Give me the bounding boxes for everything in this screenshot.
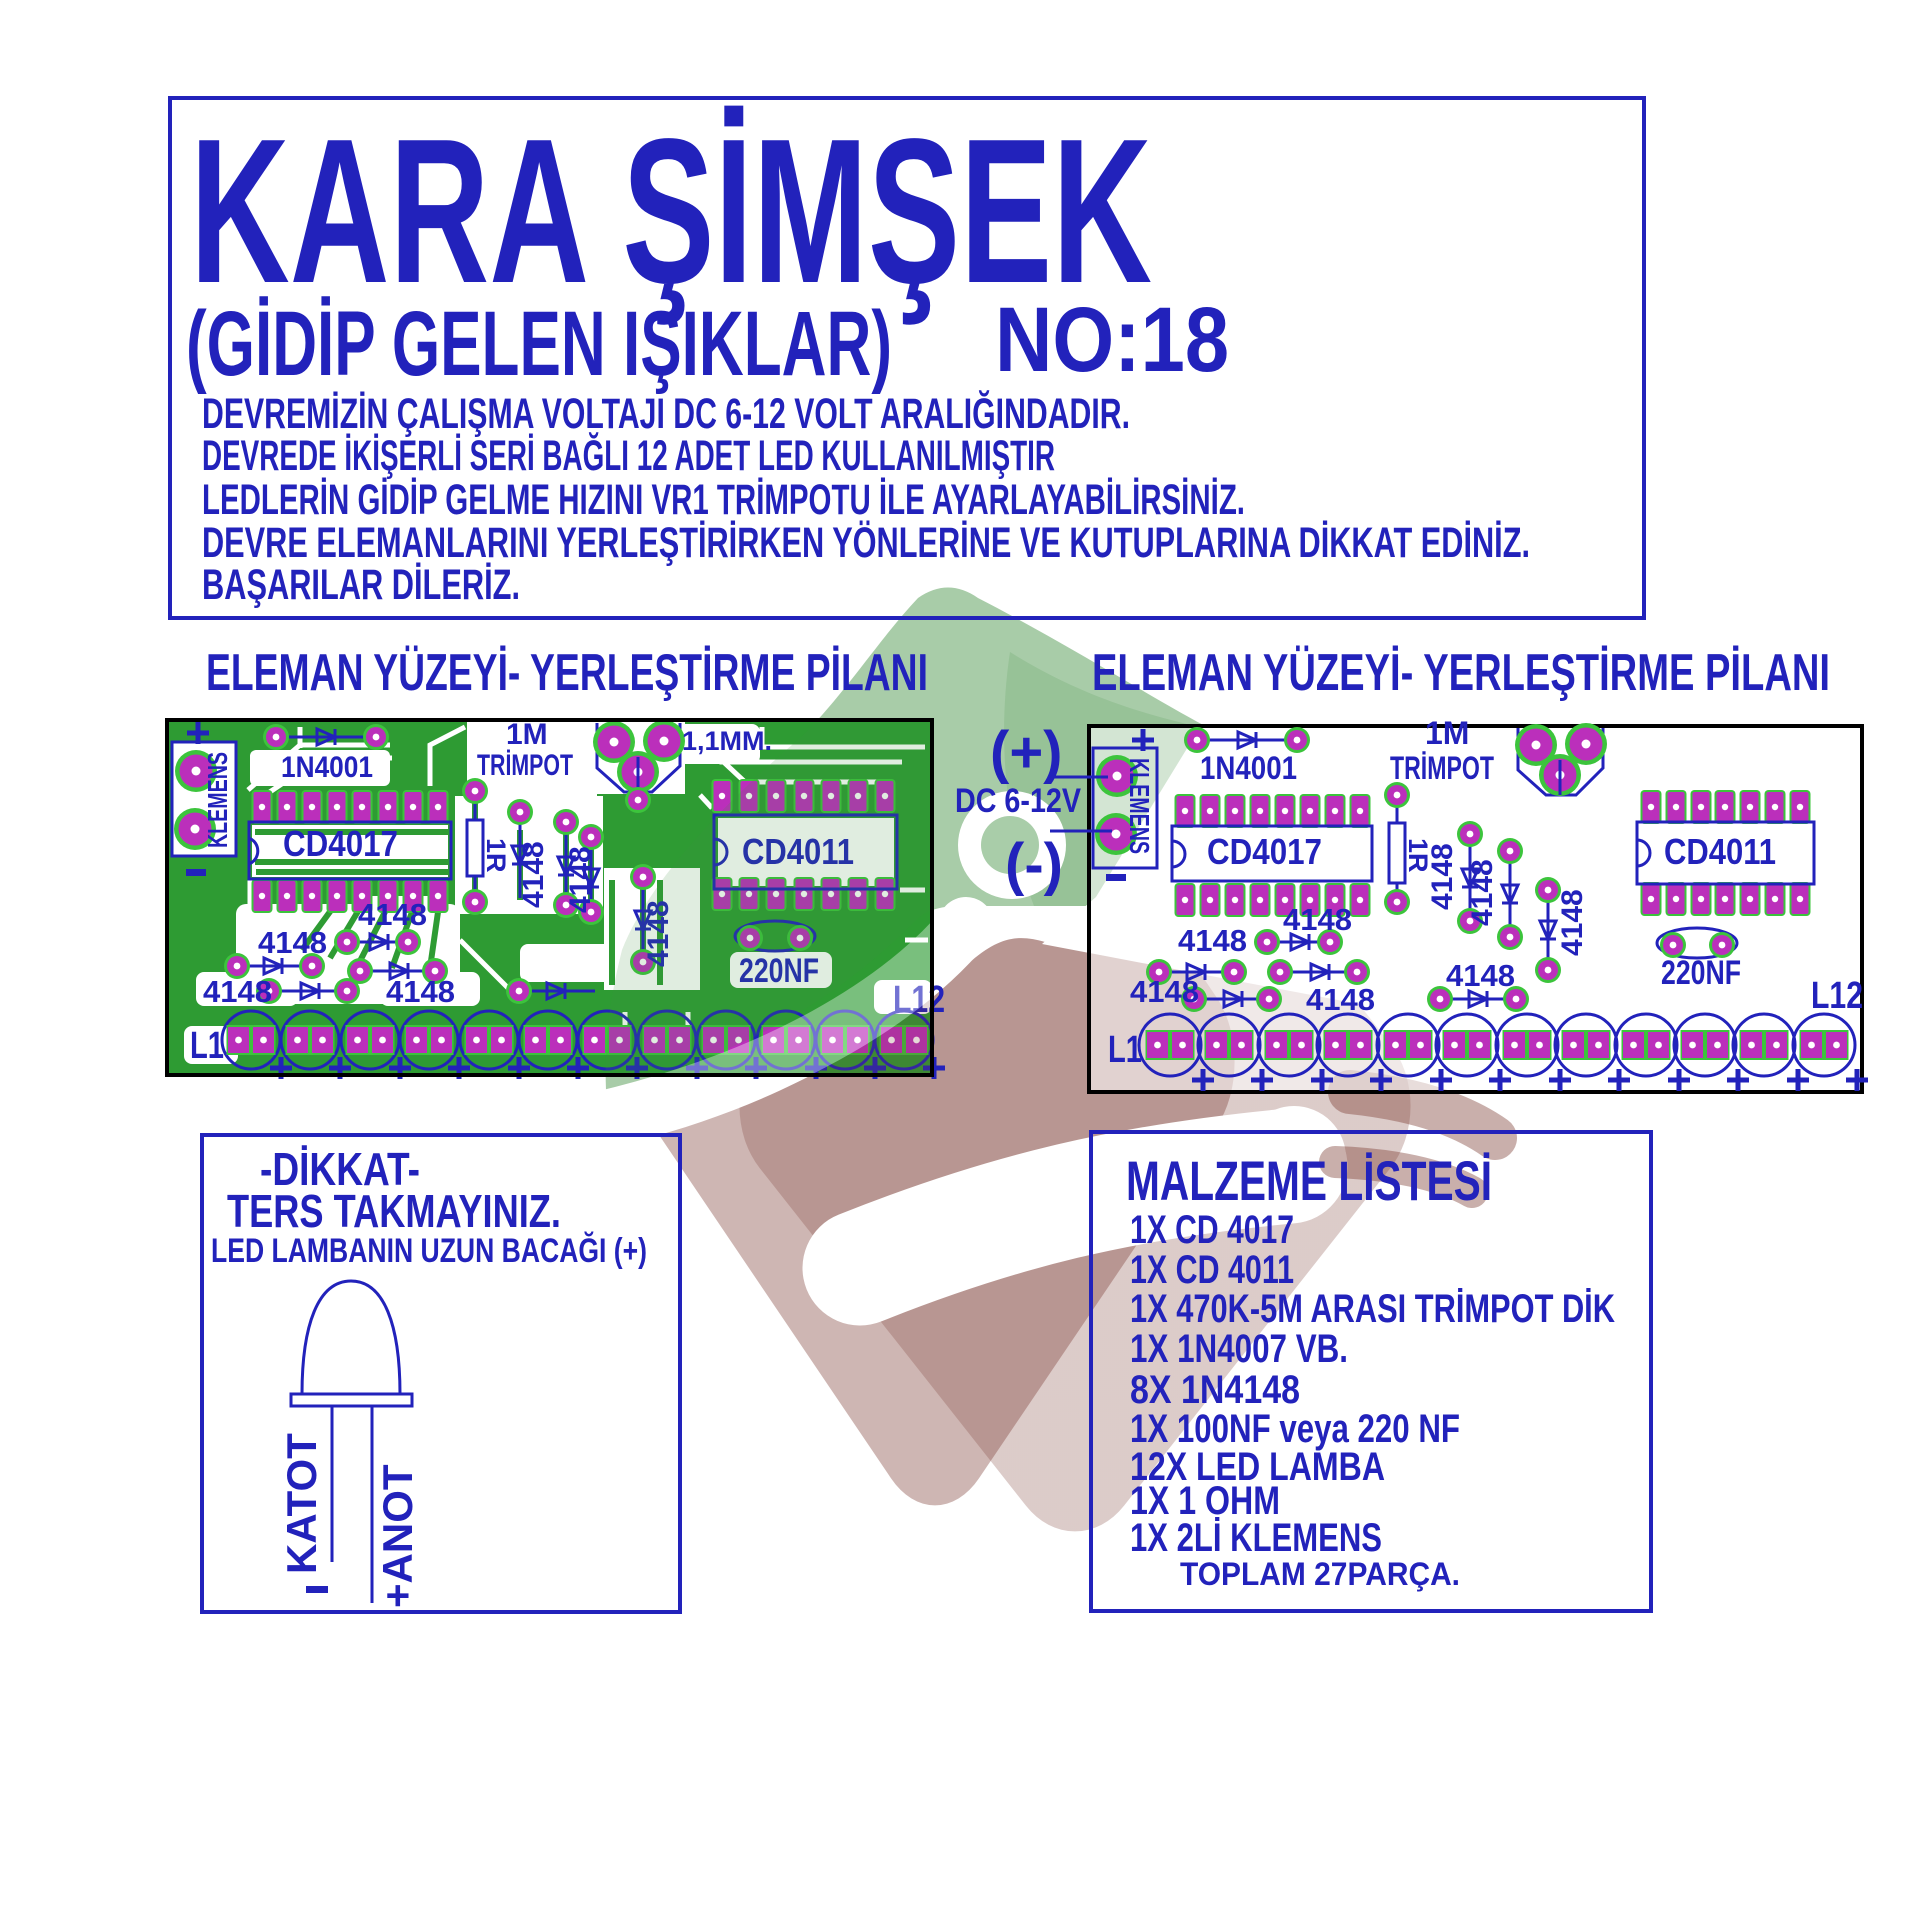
svg-text:ELEMAN YÜZEYİ- YERLEŞTİRME PİL: ELEMAN YÜZEYİ- YERLEŞTİRME PİLANI: [206, 644, 928, 702]
svg-text:1,1MM.: 1,1MM.: [682, 726, 772, 756]
svg-text:DC 6-12V: DC 6-12V: [955, 782, 1081, 820]
svg-text:4148: 4148: [258, 925, 327, 960]
svg-text:4148: 4148: [564, 846, 597, 913]
svg-text:4148: 4148: [517, 841, 550, 908]
svg-text:8X 1N4148: 8X 1N4148: [1130, 1368, 1300, 1412]
svg-text:1M: 1M: [1425, 715, 1469, 751]
svg-text:4148: 4148: [203, 974, 272, 1009]
svg-text:4148: 4148: [1556, 889, 1589, 956]
svg-text:4148: 4148: [1466, 859, 1499, 926]
svg-text:NO:18: NO:18: [995, 289, 1229, 391]
svg-text:L1: L1: [1108, 1029, 1142, 1071]
svg-text:4148: 4148: [1306, 982, 1375, 1017]
svg-text:CD4017: CD4017: [283, 823, 398, 864]
svg-text:CD4017: CD4017: [1207, 831, 1322, 872]
svg-text:4148: 4148: [1446, 958, 1515, 993]
svg-text:LED LAMBANIN UZUN BACAĞI (+): LED LAMBANIN UZUN BACAĞI (+): [211, 1232, 647, 1270]
svg-text:1R: 1R: [481, 838, 511, 873]
svg-text:L12: L12: [1811, 975, 1863, 1017]
svg-text:+ANOT: +ANOT: [374, 1464, 421, 1608]
svg-text:DEVREDE İKİŞERLİ SERİ BAĞLI 12: DEVREDE İKİŞERLİ SERİ BAĞLI 12 ADET LED …: [202, 432, 1055, 480]
svg-text:(GİDİP GELEN IŞIKLAR): (GİDİP GELEN IŞIKLAR): [186, 293, 892, 395]
svg-text:DEVRE ELEMANLARINI YERLEŞTİRİR: DEVRE ELEMANLARINI YERLEŞTİRİRKEN YÖNLER…: [202, 519, 1530, 567]
svg-text:4148: 4148: [1283, 902, 1352, 937]
svg-text:1M: 1M: [506, 718, 548, 751]
svg-text:4148: 4148: [386, 974, 455, 1009]
svg-text:4148: 4148: [1426, 843, 1459, 910]
svg-text:LEDLERİN GİDİP GELME HIZINI VR: LEDLERİN GİDİP GELME HIZINI VR1 TRİMPOTU…: [202, 476, 1245, 524]
svg-text:1X 2Lİ KLEMENS: 1X 2Lİ KLEMENS: [1130, 1516, 1382, 1560]
svg-text:TERS TAKMAYINIZ.: TERS TAKMAYINIZ.: [227, 1185, 561, 1237]
svg-text:4148: 4148: [358, 897, 427, 932]
svg-text:TRİMPOT: TRİMPOT: [477, 749, 573, 782]
svg-text:KLEMENS: KLEMENS: [1124, 758, 1155, 854]
svg-text:220NF: 220NF: [1661, 954, 1741, 992]
svg-text:TRİMPOT: TRİMPOT: [1390, 750, 1494, 786]
svg-text:TOPLAM 27PARÇA.: TOPLAM 27PARÇA.: [1180, 1556, 1460, 1592]
svg-text:4148: 4148: [1178, 923, 1247, 958]
svg-text:1X 470K-5M ARASI TRİMPOT DİK: 1X 470K-5M ARASI TRİMPOT DİK: [1130, 1287, 1615, 1331]
svg-text:(-): (-): [1005, 832, 1063, 897]
svg-text:KLEMENS: KLEMENS: [202, 752, 233, 848]
svg-text:MALZEME LİSTESİ: MALZEME LİSTESİ: [1126, 1149, 1492, 1212]
svg-text:1X CD 4011: 1X CD 4011: [1130, 1248, 1294, 1292]
svg-text:1X CD 4017: 1X CD 4017: [1130, 1208, 1294, 1252]
svg-text:1N4001: 1N4001: [281, 751, 373, 784]
svg-text:DEVREMİZİN ÇALIŞMA VOLTAJI DC: DEVREMİZİN ÇALIŞMA VOLTAJI DC 6-12 VOLT …: [202, 390, 1130, 438]
svg-text:L1: L1: [190, 1025, 224, 1067]
svg-text:4148: 4148: [1130, 974, 1199, 1009]
svg-text:KATOT: KATOT: [278, 1433, 325, 1574]
svg-text:1N4001: 1N4001: [1200, 750, 1297, 786]
svg-text:BAŞARILAR DİLERİZ.: BAŞARILAR DİLERİZ.: [202, 561, 520, 609]
svg-text:1X 1N4007 VB.: 1X 1N4007 VB.: [1130, 1327, 1348, 1371]
svg-text:(+): (+): [990, 720, 1063, 785]
svg-text:CD4011: CD4011: [1664, 831, 1776, 872]
svg-text:ELEMAN YÜZEYİ- YERLEŞTİRME PİL: ELEMAN YÜZEYİ- YERLEŞTİRME PİLANI: [1092, 644, 1830, 702]
